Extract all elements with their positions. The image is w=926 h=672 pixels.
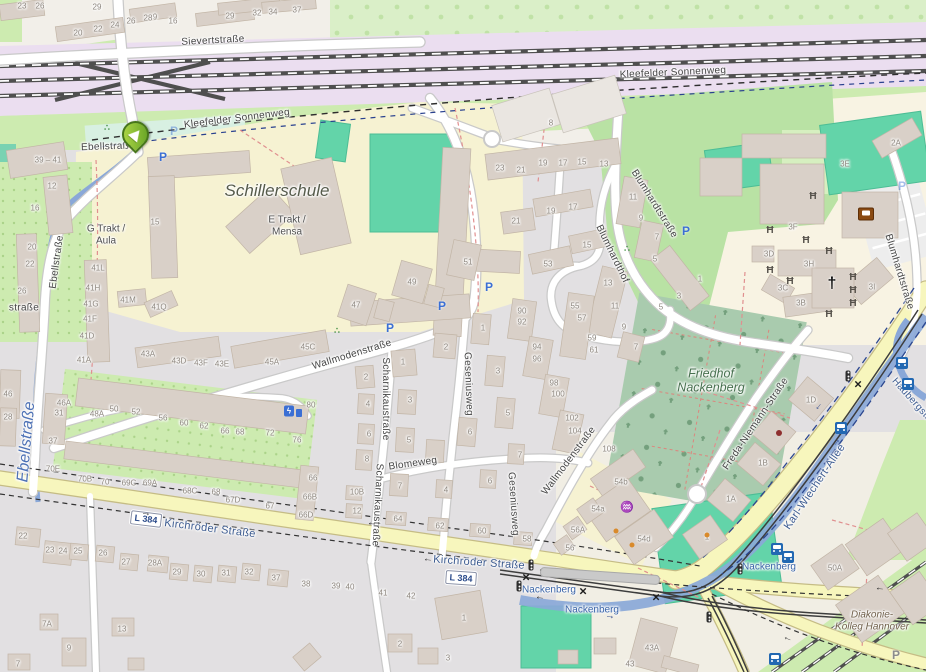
building [507,444,524,465]
building [62,638,86,666]
building [357,424,374,445]
building [128,658,144,670]
building [594,638,616,654]
building [485,355,506,386]
building [700,158,742,196]
building [391,349,417,377]
building [147,555,169,573]
building [558,650,578,664]
building [117,289,147,308]
building [436,480,453,499]
building [495,397,516,428]
building [435,590,488,639]
building [397,390,416,415]
building [193,565,213,583]
building [40,614,58,630]
building [760,164,824,224]
building [418,648,438,664]
building [84,260,110,363]
building [148,176,178,279]
building [428,517,449,531]
building [0,408,17,447]
building [480,470,497,489]
building [267,569,289,587]
building [507,299,536,342]
building [425,440,444,463]
location-marker[interactable] [122,121,149,148]
building [357,394,374,415]
building [470,523,491,537]
building [119,553,139,571]
building [16,234,39,333]
map-canvas[interactable]: SievertstraßeKleefelder SonnenwegKleefel… [0,0,926,672]
building [457,417,477,446]
building [355,365,375,388]
building [388,634,412,652]
building [169,563,189,581]
building [69,543,89,561]
building [842,192,898,238]
building [389,474,408,497]
building [112,618,134,636]
building [346,486,363,501]
building [752,246,774,262]
building [217,565,237,583]
building [15,527,41,547]
building [395,428,414,453]
building [355,450,372,471]
building [42,393,67,444]
building [433,333,457,359]
building [386,511,407,525]
route-ref-badge: L 384 [445,570,477,586]
building [95,545,115,563]
building [812,268,854,308]
building [241,563,261,581]
building [501,208,536,234]
building [346,504,363,519]
building [514,531,533,545]
building [43,541,73,566]
building [471,313,492,344]
building [8,654,30,670]
building [742,134,826,158]
